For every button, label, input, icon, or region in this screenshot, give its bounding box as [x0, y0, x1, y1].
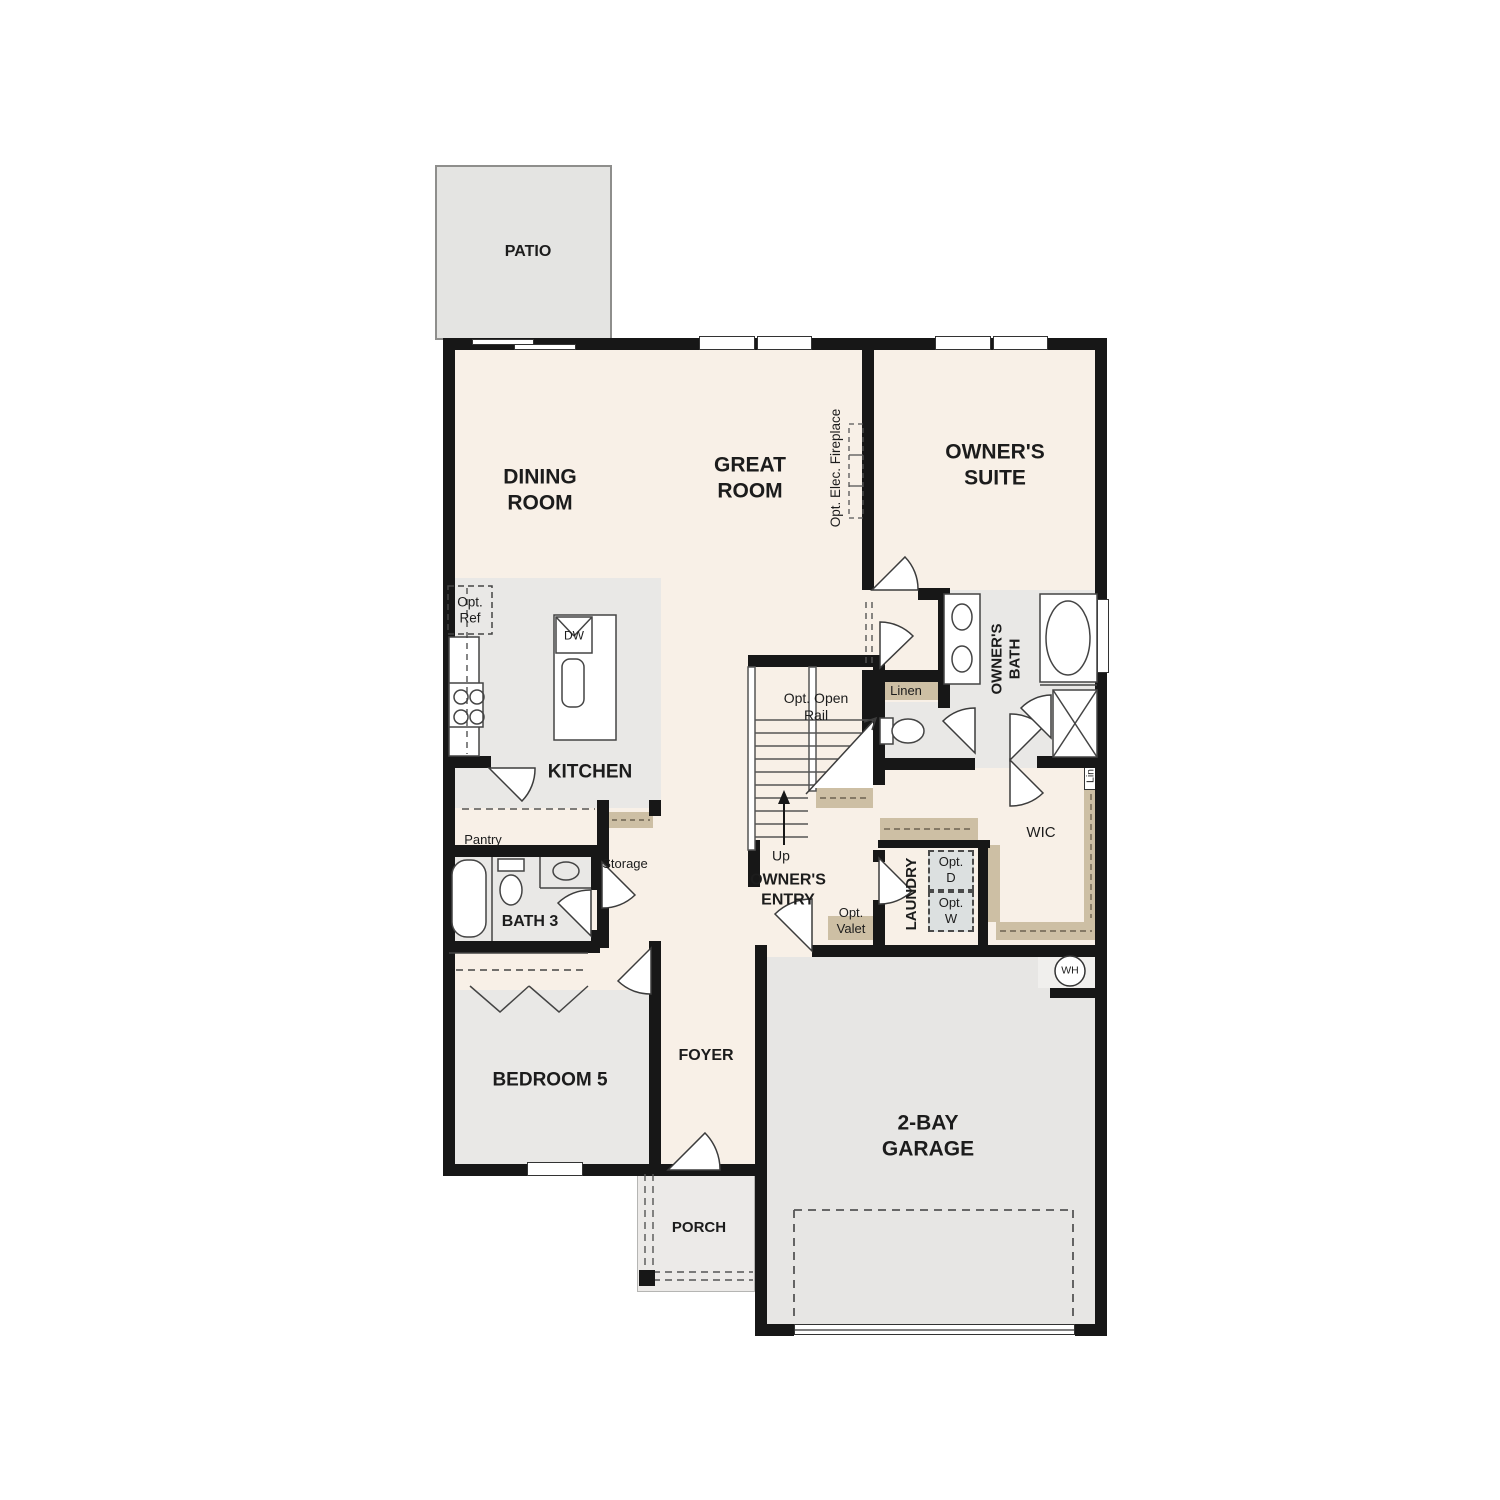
- wall-segment: [873, 850, 885, 862]
- owners-suite-label: OWNER'S SUITE: [945, 439, 1045, 490]
- linen-label: Linen: [890, 683, 922, 699]
- wall-segment: [443, 756, 491, 768]
- wic-shelf-bottom: [996, 922, 1097, 940]
- kitchen-label: KITCHEN: [548, 760, 632, 783]
- wall-segment: [1075, 1324, 1107, 1336]
- dining-room-label: DINING ROOM: [503, 464, 577, 515]
- water-heater-label: WH: [1061, 965, 1079, 978]
- pantry-label: Pantry: [464, 832, 502, 848]
- drop-zone-shelf: [880, 818, 978, 840]
- window: [794, 1324, 1075, 1335]
- wall-segment: [755, 945, 767, 1335]
- lin-label: Lin: [1085, 769, 1098, 783]
- storage-shelf: [609, 812, 653, 828]
- window: [514, 344, 576, 350]
- wall-segment: [1037, 756, 1097, 768]
- window: [699, 336, 755, 350]
- window: [1097, 599, 1109, 673]
- fireplace-label: Opt. Elec. Fireplace: [828, 409, 844, 528]
- wall-segment: [443, 941, 600, 953]
- stair-landing-shelf: [816, 788, 873, 808]
- opt-washer-label: Opt. W: [939, 895, 964, 927]
- garage-label: 2-BAY GARAGE: [882, 1110, 974, 1161]
- wic-label: WIC: [1026, 824, 1055, 842]
- wall-segment: [649, 800, 661, 816]
- opt-ref-label: Opt. Ref: [457, 595, 483, 628]
- foyer-label: FOYER: [678, 1046, 733, 1066]
- wall-segment: [1095, 338, 1107, 1335]
- window: [935, 336, 991, 350]
- patio-label: PATIO: [505, 242, 552, 262]
- wall-segment: [443, 1164, 763, 1176]
- wall-segment: [748, 655, 885, 667]
- wall-segment: [649, 941, 661, 1176]
- wall-segment: [978, 840, 988, 945]
- window: [757, 336, 812, 350]
- opt-dryer-label: Opt. D: [939, 854, 964, 886]
- wall-segment: [1050, 988, 1097, 998]
- bath3-label: BATH 3: [502, 912, 559, 932]
- window: [993, 336, 1048, 350]
- wall-segment: [878, 840, 990, 848]
- wall-segment: [938, 686, 950, 708]
- wall-segment: [812, 945, 1107, 957]
- wall-segment: [862, 344, 874, 590]
- opt-open-rail-label: Opt. Open Rail: [784, 690, 849, 724]
- wall-segment: [873, 655, 885, 785]
- dishwasher-label: DW: [564, 629, 584, 644]
- window: [527, 1162, 583, 1176]
- up-label: Up: [772, 847, 790, 864]
- bedroom5-label: BEDROOM 5: [492, 1068, 607, 1091]
- wall-segment: [591, 845, 603, 890]
- wic-shelf-left: [988, 845, 1000, 922]
- owners-bath-label: OWNER'S BATH: [989, 623, 1026, 694]
- great-room-label: GREAT ROOM: [714, 452, 786, 503]
- storage-label: Storage: [602, 856, 648, 872]
- laundry-label: LAUNDRY: [903, 858, 921, 931]
- floor-plan: PATIO DINING ROOM GREAT ROOM OWNER'S SUI…: [0, 0, 1500, 1500]
- wall-segment: [873, 900, 885, 945]
- opt-valet-label: Opt. Valet: [837, 905, 866, 937]
- owners-entry-label: OWNER'S ENTRY: [750, 870, 826, 909]
- porch-label: PORCH: [672, 1219, 726, 1237]
